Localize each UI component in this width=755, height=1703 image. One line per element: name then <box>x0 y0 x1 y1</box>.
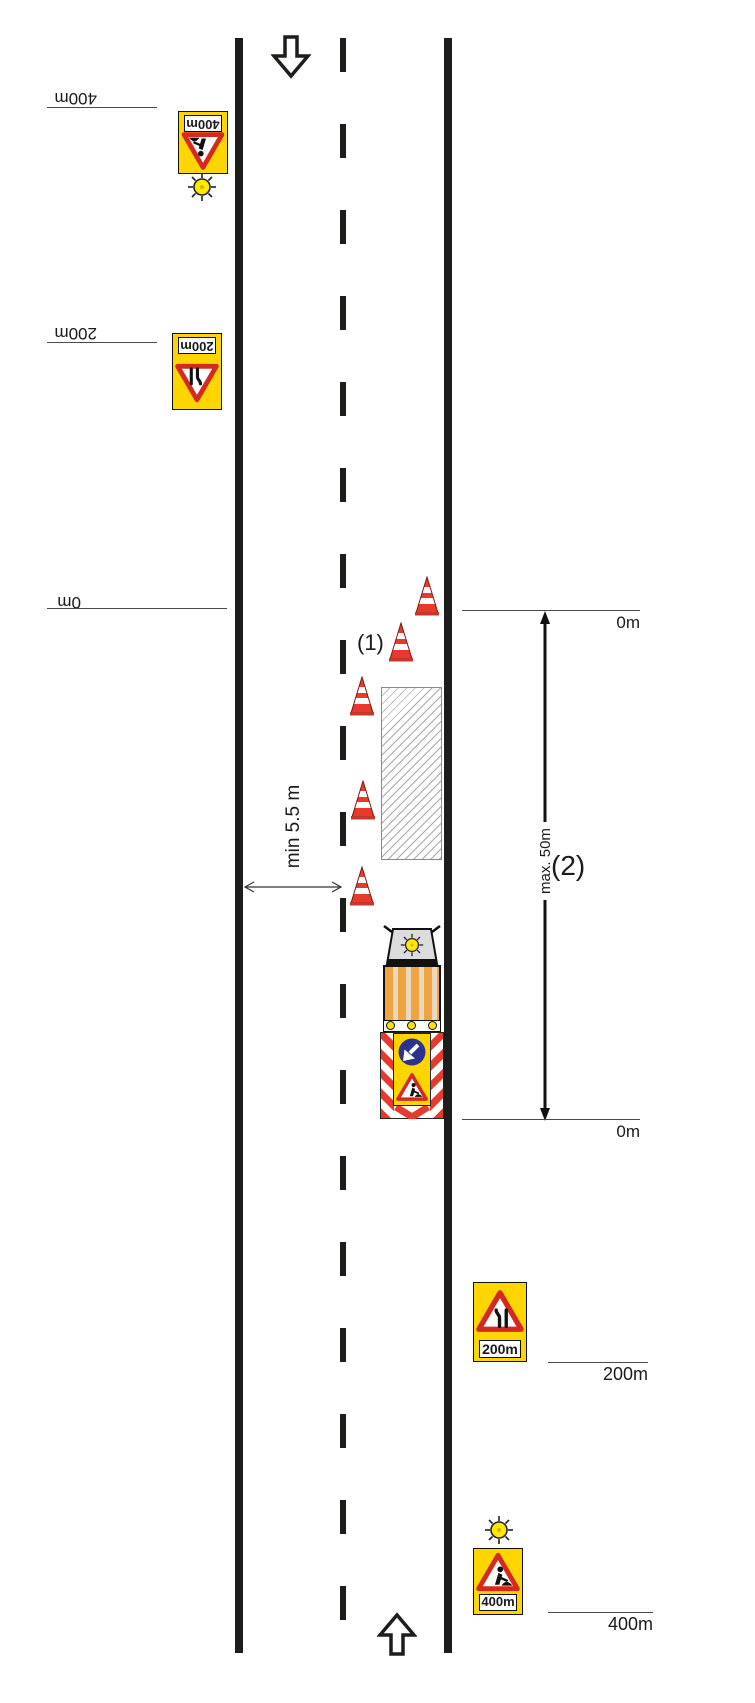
vehicle-cab <box>379 924 445 968</box>
sign-distance-plate: 400m <box>479 1594 518 1611</box>
roadworks-icon <box>396 1072 428 1102</box>
vehicle-light-strip <box>383 1020 441 1032</box>
vehicle-body <box>383 965 441 1022</box>
sign-left-narrows-200: 200m <box>172 333 222 410</box>
board-sign-panel <box>393 1033 431 1106</box>
left-marker-400m-label: 400m <box>45 88 97 108</box>
cone-note-label: (1) <box>357 630 384 656</box>
road-edge-left <box>235 38 243 1653</box>
lane-width-arrow <box>243 880 343 894</box>
left-marker-0m-line <box>47 608 227 609</box>
keep-left-icon <box>397 1037 427 1067</box>
left-marker-400m-line <box>47 107 157 108</box>
flashing-beacon-icon <box>484 1515 514 1545</box>
right-marker-0m-bottom-label: 0m <box>600 1122 640 1142</box>
traffic-cone-icon <box>348 780 378 820</box>
sign-right-roadworks-400: 400m <box>473 1548 523 1615</box>
right-marker-200m-line <box>548 1362 648 1363</box>
lane-width-label: min 5.5 m <box>283 778 305 875</box>
warning-lamp-icon <box>428 1021 437 1030</box>
left-marker-200m-label: 200m <box>45 323 97 343</box>
right-marker-0m-bottom-line <box>462 1119 640 1120</box>
vehicle-beacon-icon <box>401 934 423 956</box>
warning-lamp-icon <box>386 1021 395 1030</box>
roadworks-icon <box>181 132 225 170</box>
zone-note-label: (2) <box>551 850 585 882</box>
right-marker-200m-label: 200m <box>586 1364 648 1385</box>
sign-distance-plate: 200m <box>479 1340 521 1358</box>
traffic-management-plan-diagram: 400m 200m 0m 400m 200m (1) min 5.5 m <box>0 0 755 1703</box>
road-edge-right <box>444 38 452 1653</box>
travel-direction-arrow-icon <box>377 1612 417 1656</box>
chevron-stripe-right <box>430 1033 443 1118</box>
sign-left-roadworks-400: 400m <box>178 111 228 174</box>
traffic-cone-icon <box>347 676 377 716</box>
road-narrows-icon <box>175 360 219 406</box>
flashing-beacon-icon <box>187 172 217 202</box>
road-narrows-icon <box>476 1286 524 1336</box>
roadworks-icon <box>476 1552 520 1592</box>
sign-distance-plate: 200m <box>178 337 217 354</box>
left-marker-200m-line <box>47 342 157 343</box>
left-marker-0m-label: 0m <box>45 592 81 612</box>
vehicle-arrow-board <box>380 1032 444 1119</box>
traffic-cone-icon <box>347 866 377 906</box>
warning-lamp-icon <box>407 1021 416 1030</box>
right-marker-400m-line <box>548 1612 653 1613</box>
sign-distance-plate: 400m <box>184 115 223 132</box>
work-area-hatched <box>381 687 442 860</box>
oncoming-traffic-arrow-icon <box>271 35 311 79</box>
traffic-cone-icon <box>412 576 442 616</box>
sign-right-narrows-200: 200m <box>473 1282 527 1362</box>
right-marker-400m-label: 400m <box>588 1614 653 1635</box>
road-centerline-dashed <box>340 38 346 1653</box>
chevron-down-icon <box>394 1106 430 1119</box>
traffic-cone-icon <box>386 622 416 662</box>
right-marker-0m-top-label: 0m <box>600 613 640 633</box>
